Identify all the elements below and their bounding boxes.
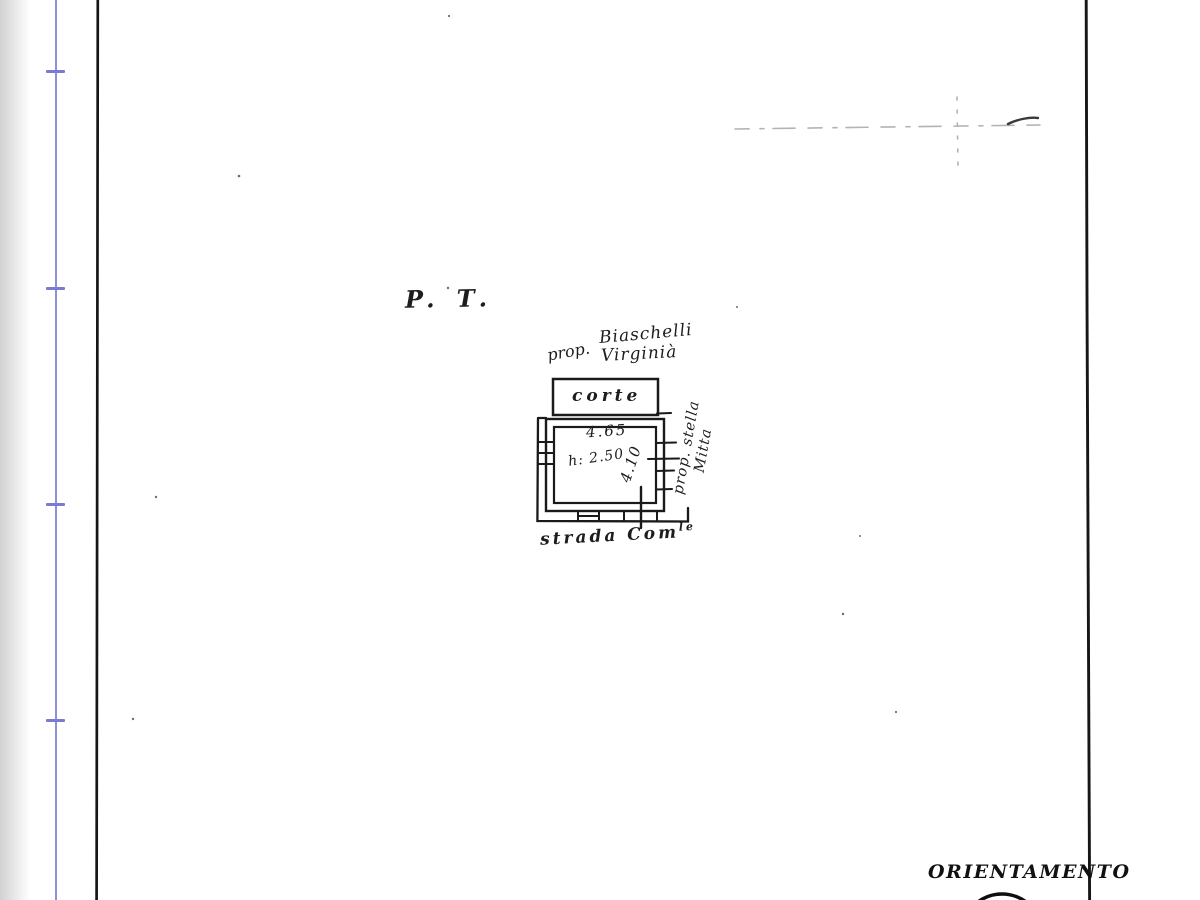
scan-artifact-lines — [735, 97, 1040, 168]
owner-name: Virginià — [601, 342, 678, 366]
orientation-label: ORIENTAMENTO — [928, 861, 1131, 883]
floor-level-label: P. T. — [405, 283, 494, 314]
scan-specks — [132, 15, 897, 720]
page-frame-left-line — [97, 0, 98, 900]
street-label-superscript: le — [678, 520, 696, 534]
courtyard-label: corte — [572, 386, 641, 406]
threshold-steps — [578, 511, 657, 521]
page-frame-right-line — [1086, 0, 1089, 900]
scan-artifact-stroke — [1008, 118, 1038, 124]
width-dimension: 4.65 — [585, 421, 628, 442]
scanned-cadastral-plan-page: P. T. prop. Biaschelli Virginià corte 4.… — [0, 0, 1200, 900]
compass-circle — [962, 894, 1042, 900]
